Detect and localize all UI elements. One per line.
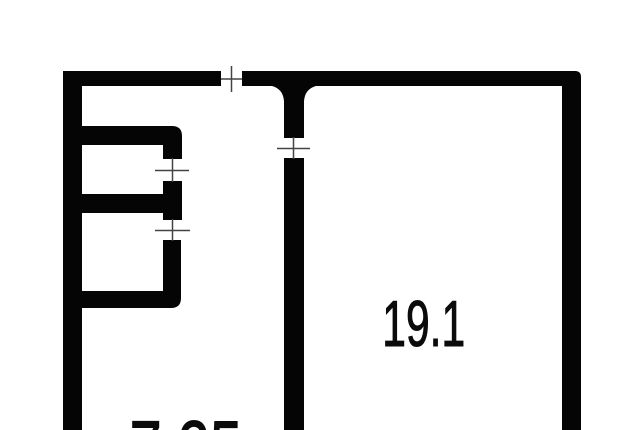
svg-text:7.25: 7.25 — [130, 405, 242, 430]
svg-text:19.1: 19.1 — [382, 287, 465, 360]
